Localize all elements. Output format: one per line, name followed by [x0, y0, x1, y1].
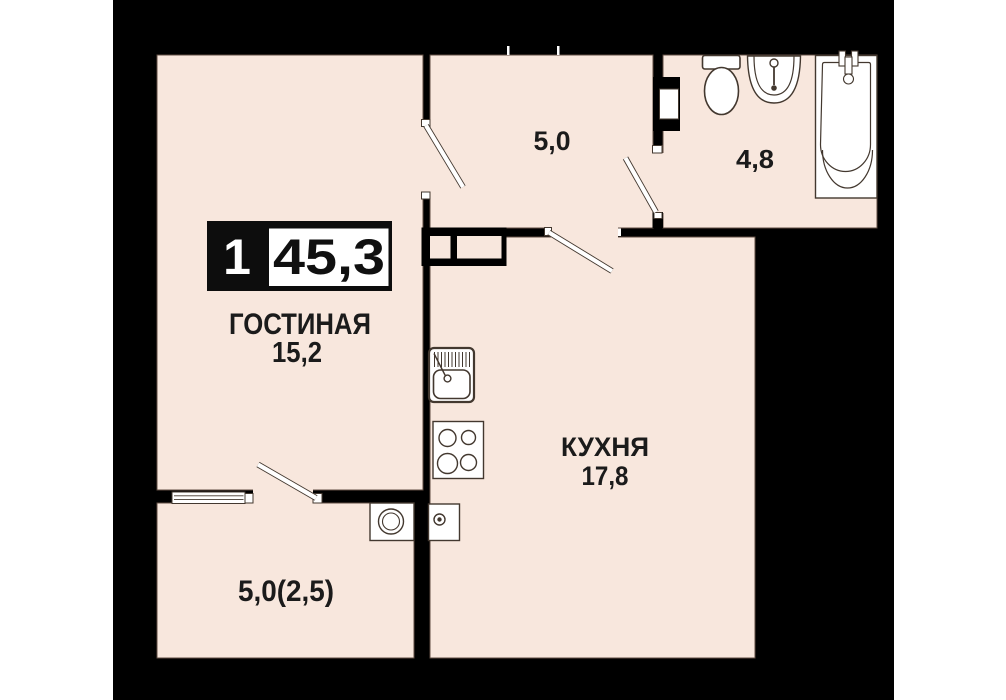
kitchen-sink-icon	[429, 348, 474, 402]
hallway-area: 5,0	[534, 126, 571, 156]
bathtub-icon	[816, 51, 878, 198]
vent-duct-icon	[653, 77, 680, 131]
badge-total-area: 45,3	[273, 229, 385, 285]
stove-icon	[433, 422, 484, 479]
kitchen-label: КУХНЯ	[561, 432, 649, 462]
floorplan-canvas: 1 45,3 ГОСТИНАЯ 15,2 КУХНЯ 17,8 5,0 4,8 …	[0, 0, 1006, 700]
toilet-icon	[703, 56, 741, 115]
balcony-window-icon	[172, 492, 245, 504]
apartment-badge: 1 45,3	[207, 221, 392, 291]
kitchen-area: 17,8	[582, 461, 629, 491]
washing-machine-icon	[370, 503, 414, 541]
boiler-icon	[429, 504, 460, 541]
entrance-door-notch-left	[507, 46, 510, 55]
living-room-area: 15,2	[272, 337, 322, 369]
floorplan-page: 1 45,3 ГОСТИНАЯ 15,2 КУХНЯ 17,8 5,0 4,8 …	[0, 0, 1006, 700]
balcony-area: 5,0(2,5)	[238, 575, 334, 608]
wardrobe-icon	[422, 228, 507, 267]
entrance-door-notch-right	[557, 46, 560, 55]
badge-rooms-count: 1	[223, 229, 251, 285]
bathroom-area: 4,8	[736, 144, 774, 174]
